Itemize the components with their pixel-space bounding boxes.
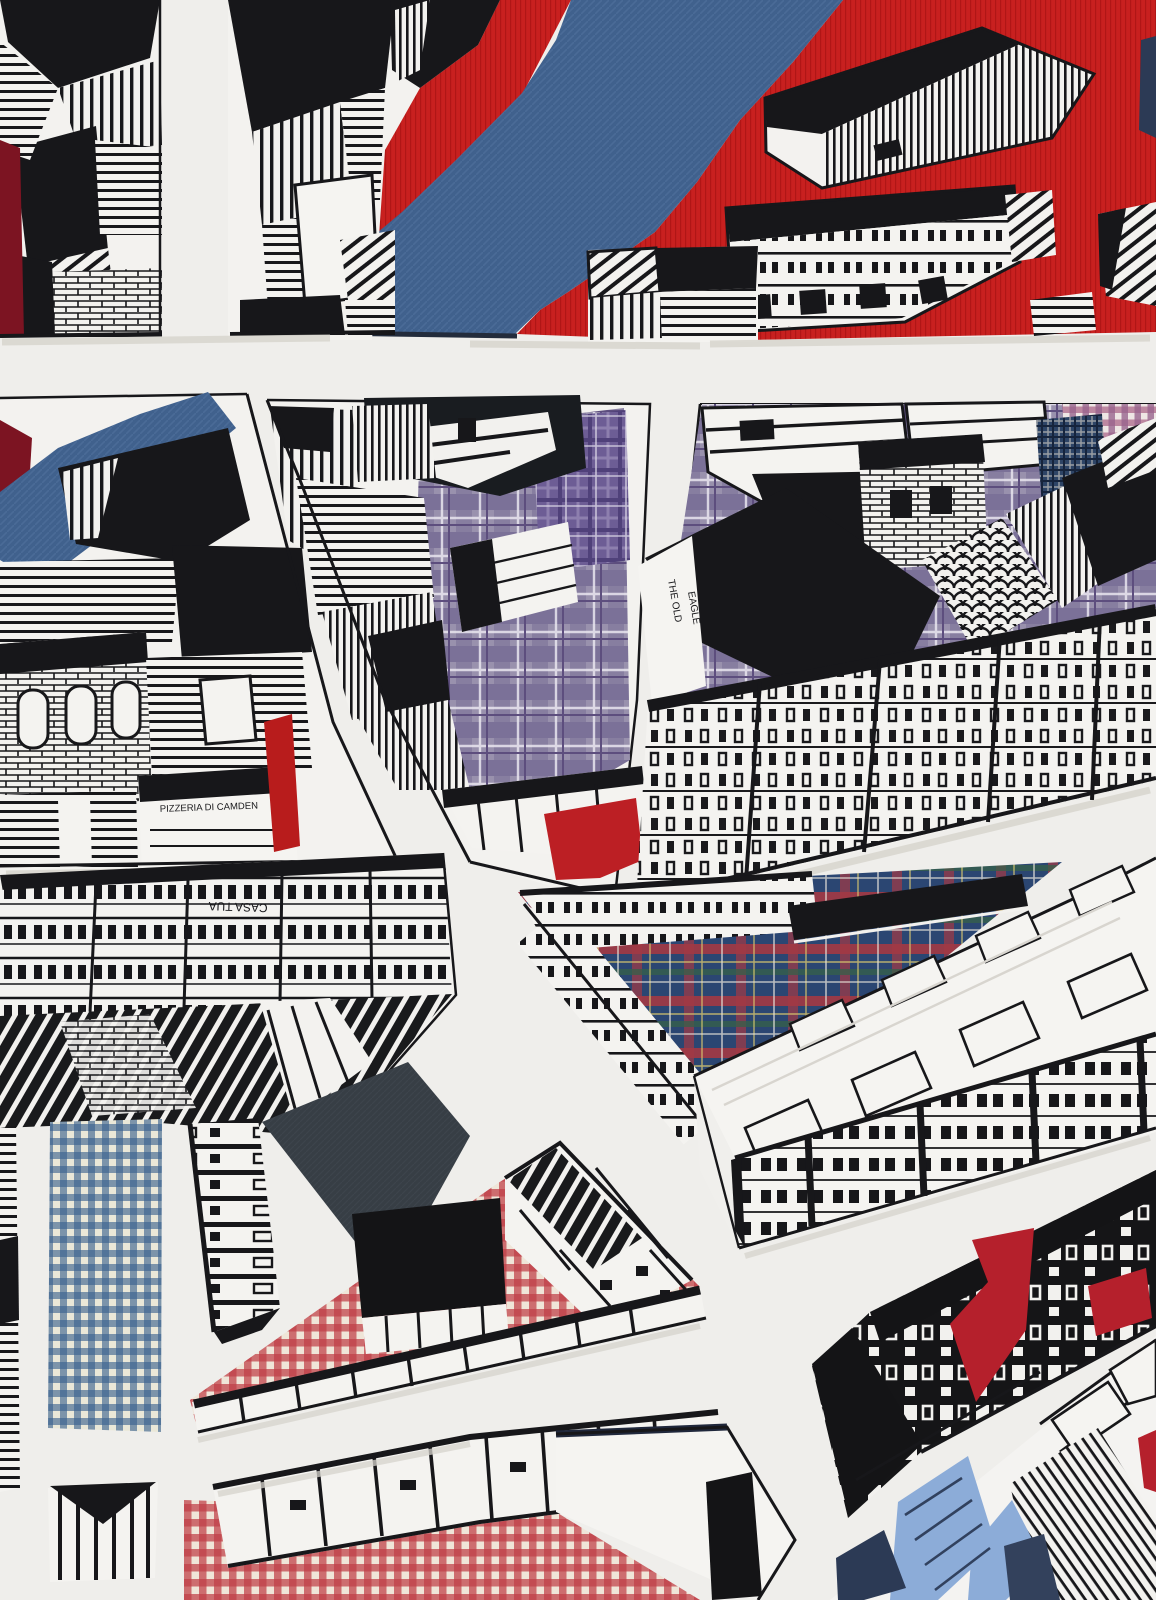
svg-text:CASA TUA: CASA TUA <box>208 899 268 915</box>
